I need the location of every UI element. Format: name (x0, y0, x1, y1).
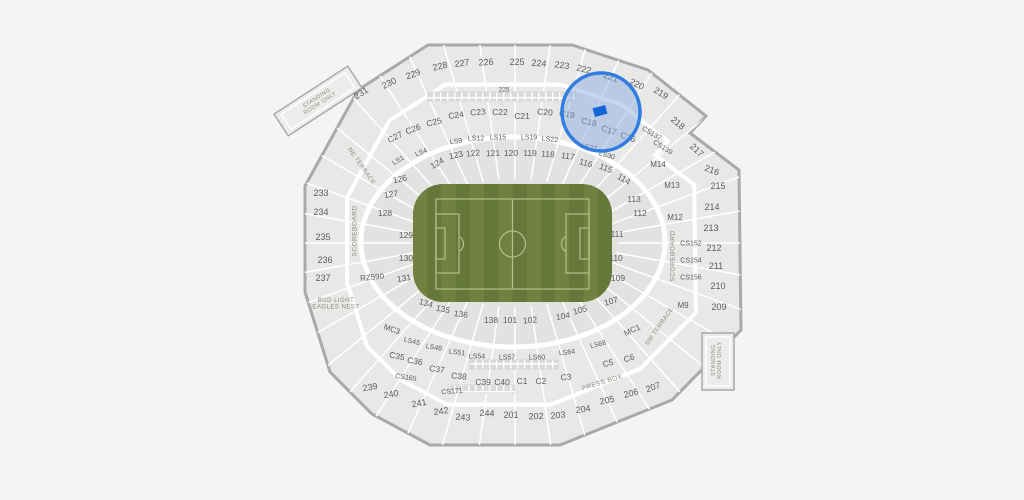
section-label-ls12[interactable]: LS12 (468, 135, 484, 142)
section-label-201[interactable]: 201 (503, 410, 518, 420)
section-label-225[interactable]: 225 (499, 86, 510, 93)
section-label-112[interactable]: 112 (633, 208, 647, 218)
section-label-ls15[interactable]: LS15 (490, 134, 506, 141)
section-label-c39[interactable]: C39 (475, 377, 491, 387)
section-label-109[interactable]: 109 (611, 273, 625, 283)
section-label-225[interactable]: 225 (509, 57, 524, 67)
section-label-c38[interactable]: C38 (451, 370, 468, 381)
section-label-209[interactable]: 209 (711, 302, 726, 312)
football-field (413, 184, 613, 302)
landmark-label-scoreboard: SCOREBOARD (669, 230, 676, 281)
section-label-c21[interactable]: C21 (514, 111, 530, 121)
section-label-cs156[interactable]: CS156 (680, 274, 702, 281)
section-label-242[interactable]: 242 (433, 405, 449, 417)
section-label-236[interactable]: 236 (317, 255, 332, 265)
landmark-label-scoreboard: SCOREBOARD (351, 205, 358, 256)
section-label-202[interactable]: 202 (528, 411, 543, 422)
section-label-121[interactable]: 121 (486, 148, 501, 158)
section-label-ls57[interactable]: LS57 (499, 354, 515, 361)
section-label-227[interactable]: 227 (454, 57, 470, 69)
section-label-ls22[interactable]: LS22 (542, 136, 559, 144)
section-label-c22[interactable]: C22 (492, 107, 508, 117)
section-label-224[interactable]: 224 (531, 58, 547, 69)
section-label-214[interactable]: 214 (704, 202, 719, 212)
section-label-c20[interactable]: C20 (537, 106, 554, 117)
section-label-203[interactable]: 203 (550, 410, 566, 421)
section-label-113[interactable]: 113 (627, 194, 641, 204)
section-label-102[interactable]: 102 (523, 314, 538, 325)
section-label-226[interactable]: 226 (478, 57, 494, 68)
section-label-213[interactable]: 213 (703, 223, 718, 233)
stadium-seating-map[interactable]: 2312302292282272262252242232222212202192… (0, 0, 1024, 500)
section-label-130[interactable]: 130 (399, 253, 413, 263)
section-label-c23[interactable]: C23 (470, 106, 487, 117)
section-label-243[interactable]: 243 (455, 412, 471, 423)
section-label-131[interactable]: 131 (396, 272, 412, 284)
section-label-m13[interactable]: M13 (664, 181, 680, 190)
suite-strip-top (428, 92, 576, 101)
section-label-m9[interactable]: M9 (677, 301, 689, 310)
section-label-233[interactable]: 233 (313, 188, 328, 198)
section-label-c2[interactable]: C2 (535, 376, 546, 386)
landmark-label-bud-light-eagles-nest: BUD LIGHTEAGLES NEST (312, 298, 359, 311)
section-label-210[interactable]: 210 (710, 281, 725, 291)
section-label-215[interactable]: 215 (710, 181, 725, 191)
section-label-110[interactable]: 110 (609, 253, 623, 263)
section-label-235[interactable]: 235 (315, 232, 330, 242)
section-label-138[interactable]: 138 (484, 315, 498, 325)
section-label-237[interactable]: 237 (315, 273, 330, 283)
section-label-117[interactable]: 117 (561, 150, 576, 162)
section-label-212[interactable]: 212 (706, 243, 721, 253)
section-label-234[interactable]: 234 (313, 207, 328, 217)
section-label-ls19[interactable]: LS19 (521, 134, 537, 141)
section-label-ls60[interactable]: LS60 (529, 354, 545, 361)
section-label-128[interactable]: 128 (378, 208, 392, 218)
section-label-c3[interactable]: C3 (560, 371, 572, 382)
section-label-136[interactable]: 136 (453, 308, 469, 320)
section-label-120[interactable]: 120 (504, 148, 518, 158)
selection-highlight (562, 73, 640, 151)
section-label-119[interactable]: 119 (523, 148, 537, 158)
section-label-122[interactable]: 122 (465, 147, 480, 158)
section-label-129[interactable]: 129 (399, 230, 413, 240)
section-label-c1[interactable]: C1 (517, 376, 528, 386)
section-label-211[interactable]: 211 (709, 261, 723, 271)
section-label-101[interactable]: 101 (503, 315, 517, 325)
seating-map-canvas: 2312302292282272262252242232222212202192… (0, 0, 1024, 500)
section-label-m12[interactable]: M12 (667, 213, 683, 222)
section-label-204[interactable]: 204 (575, 403, 591, 415)
section-label-111[interactable]: 111 (611, 229, 624, 239)
section-label-244[interactable]: 244 (479, 408, 494, 419)
section-label-cs154[interactable]: CS154 (680, 257, 702, 264)
section-label-c40[interactable]: C40 (494, 377, 510, 387)
section-label-223[interactable]: 223 (554, 59, 570, 71)
section-label-127[interactable]: 127 (383, 188, 399, 200)
section-label-cs152[interactable]: CS152 (680, 240, 702, 247)
section-label-ls54[interactable]: LS54 (469, 353, 485, 360)
section-label-118[interactable]: 118 (541, 149, 555, 160)
landmark-label-standing-room-only: STANDINGROOM ONLY (711, 341, 723, 379)
section-label-m14[interactable]: M14 (650, 160, 666, 169)
